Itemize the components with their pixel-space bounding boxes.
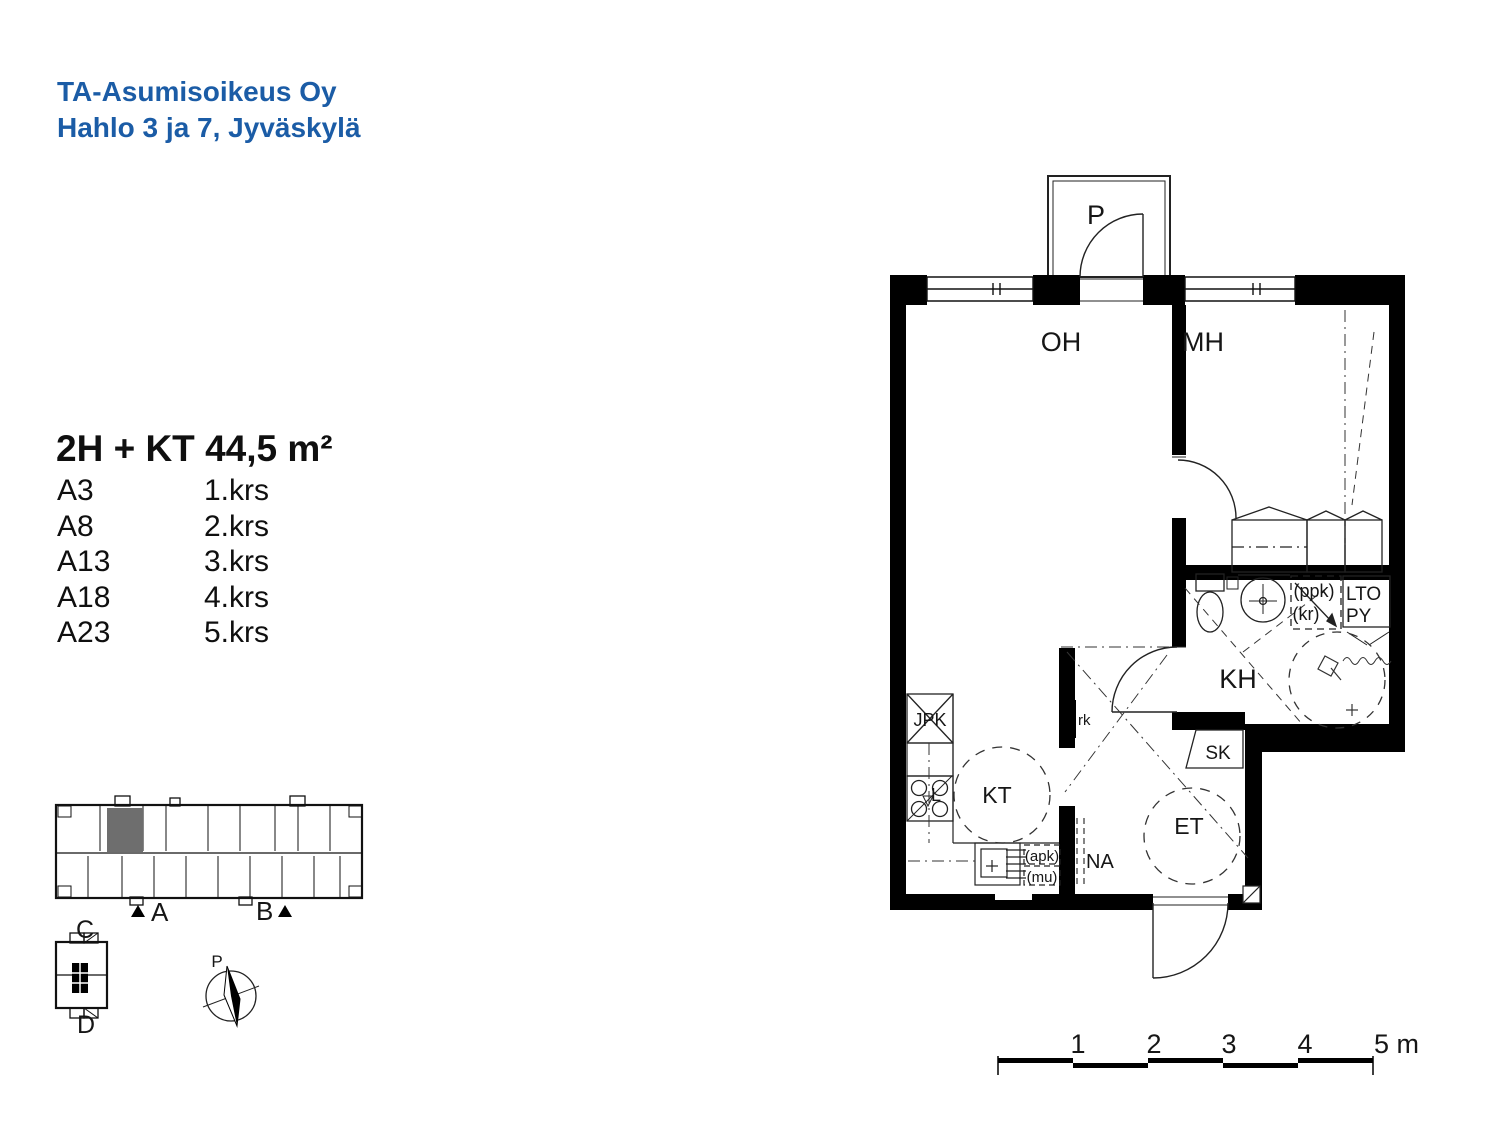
building-ab-outline — [56, 796, 362, 905]
laundry-label: PY — [1346, 606, 1372, 627]
bedroom-label: MH — [1182, 327, 1224, 357]
corner-niche — [1243, 886, 1260, 903]
coat-rack-symbol — [1077, 818, 1084, 888]
entrance-door — [1153, 897, 1228, 978]
building-cd-outline — [56, 933, 107, 1018]
scale-bar: 1 2 3 4 5 m — [998, 1029, 1419, 1075]
window-bedroom — [1185, 275, 1295, 305]
microwave-reservation-label: (mu) — [1027, 869, 1058, 886]
north-label: P — [211, 952, 222, 971]
wardrobes — [1232, 507, 1382, 572]
bathroom-sink — [1227, 575, 1290, 622]
living-room-label: OH — [1041, 327, 1082, 357]
entry-label: ET — [1174, 813, 1203, 839]
kitchen-sink — [975, 843, 1026, 885]
floorplan-page: TA-Asumisoikeus Oy Hahlo 3 ja 7, Jyväsky… — [0, 0, 1500, 1125]
balcony-label: P — [1087, 200, 1105, 230]
cleaning-closet-label: SK — [1205, 743, 1231, 764]
stairwell-a-marker — [131, 905, 145, 917]
stairwell-a-label: A — [151, 897, 169, 927]
balcony-outline — [1048, 176, 1170, 277]
stairwell-b-marker — [278, 905, 292, 917]
stairwell-c-label: C — [76, 916, 94, 944]
kitchen-label: KT — [982, 782, 1011, 808]
scale-tick-2: 2 — [1146, 1029, 1161, 1059]
dishwasher-reservation-label: (apk) — [1025, 848, 1059, 865]
wall-notch — [995, 890, 1032, 900]
scale-tick-4: 4 — [1297, 1029, 1312, 1059]
bathroom-label: KH — [1219, 664, 1257, 694]
toilet — [1196, 574, 1224, 632]
highlighted-unit — [107, 808, 143, 852]
window-living — [927, 275, 1033, 305]
site-key-plan: A B C D P — [56, 796, 362, 1039]
architectural-drawing: P OH MH KH KT ET SK NA JPK L rk (apk) (m… — [0, 0, 1500, 1125]
compass-rose: P — [203, 952, 259, 1026]
washer-reservation-label: (ppk) — [1293, 581, 1334, 601]
kitchen-counter-upper — [907, 743, 953, 776]
main-floor-plan: P OH MH KH KT ET SK NA JPK L rk (apk) (m… — [890, 176, 1405, 978]
shower-area — [1289, 632, 1391, 728]
scale-end-label: 5 m — [1374, 1029, 1419, 1059]
stove-label: L — [931, 785, 941, 805]
fridge-freezer-label: JPK — [913, 710, 946, 730]
heat-recovery-label: LTO — [1346, 584, 1381, 605]
stairwell-b-label: B — [256, 896, 273, 926]
scale-tick-1: 1 — [1070, 1029, 1085, 1059]
bedroom-door — [1172, 457, 1236, 518]
stairwell-d-label: D — [77, 1011, 95, 1039]
scale-tick-3: 3 — [1221, 1029, 1236, 1059]
electrical-cabinet-label: rk — [1078, 712, 1091, 729]
coat-rack-label: NA — [1086, 851, 1114, 873]
dryer-reservation-label: (kr) — [1293, 604, 1320, 624]
